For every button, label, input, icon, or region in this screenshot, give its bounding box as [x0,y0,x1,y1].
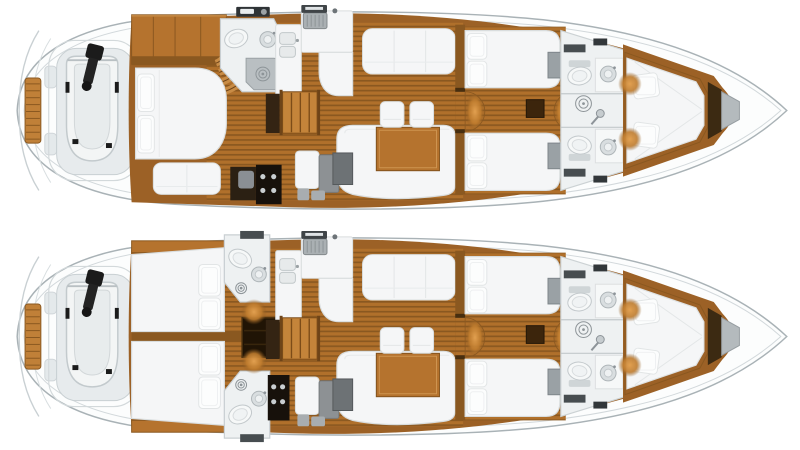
wardrobe-starboard [548,143,562,169]
head-door-starboard [564,169,586,177]
wardrobe-port [548,278,562,304]
salon-bulkhead [455,251,465,421]
galley-peninsula [319,278,353,321]
floorplan-hull-bottom [0,227,800,449]
aft-head-port [224,231,269,302]
guest-cabin-port [465,257,560,314]
bottle-locker [268,375,290,420]
salon-bulkhead [455,25,465,195]
light-glow-vberth-port [618,72,642,96]
light-glow-vberth-starboard [618,127,642,151]
corridor-locker [526,326,544,344]
port-settee [363,29,456,74]
twin-heads [561,31,625,191]
boat-bottom-svg [0,227,800,449]
sofa [153,163,220,195]
aft-cabin-port [132,248,225,332]
swim-platform [25,78,41,143]
head-door-port [564,44,586,52]
guest-cabin-port [465,31,560,88]
floorplan-hull-top [0,1,800,223]
stove [303,239,327,255]
deck-hatch-port [593,38,607,45]
deck-hatch-starboard [593,402,607,409]
wardrobe-port [548,52,562,78]
corridor-locker [526,100,544,118]
guest-cabin-starboard [465,133,560,190]
companionway-stairs [280,90,320,135]
door-glow-aft-starboard [241,348,267,374]
shower-stall [246,58,279,90]
aft-master-cabin [132,15,227,65]
port-settee [363,255,456,300]
galley-peninsula [319,52,353,95]
island-bed [136,68,227,159]
stair-locker [266,94,280,133]
salon-table [376,127,439,170]
head-door-port [564,270,586,278]
swim-platform [25,304,41,369]
tv-cabinet [333,379,353,411]
salon-table [376,353,439,396]
stair-locker [266,320,280,359]
light-glow-vberth-starboard [618,353,642,377]
floorplan-canvas [0,0,800,450]
companionway-stairs [280,316,320,361]
bottle-locker [256,165,282,204]
deck-hatch-aft [236,7,270,17]
vanity-locker [230,167,256,201]
light-glow-vberth-port [618,298,642,322]
deck-hatch-port [593,264,607,271]
stove [303,13,327,29]
twin-heads [561,257,625,417]
wardrobe-starboard [548,369,562,395]
guest-cabin-starboard [465,359,560,416]
boat-top-svg [0,1,800,223]
door-glow-aft-port [241,299,267,325]
deck-hatch-starboard [593,176,607,183]
aft-head-starboard [224,371,269,442]
tv-cabinet [333,153,353,185]
aft-cabin-starboard [132,341,225,425]
head-door-starboard [564,395,586,403]
